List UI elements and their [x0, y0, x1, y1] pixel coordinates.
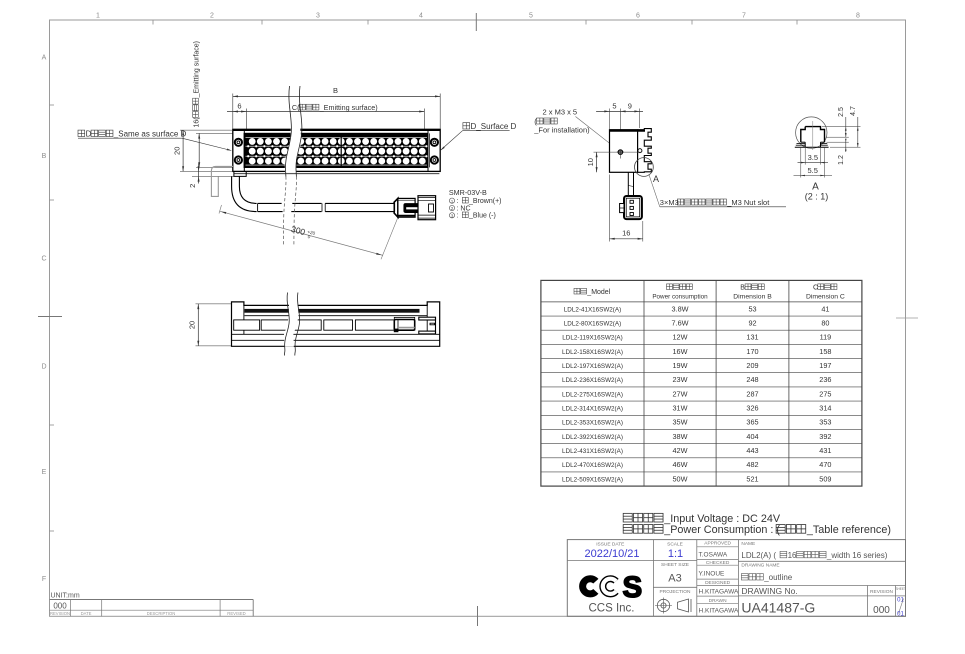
svg-text:209: 209 — [746, 361, 758, 370]
svg-text:12W: 12W — [672, 333, 687, 342]
svg-text:REVISED: REVISED — [227, 611, 245, 616]
svg-text:Y.INOUE: Y.INOUE — [699, 570, 726, 577]
svg-text:19W: 19W — [672, 361, 687, 370]
svg-text:5: 5 — [612, 102, 616, 111]
svg-text:B: B — [42, 153, 47, 160]
svg-text:170: 170 — [746, 347, 758, 356]
svg-text:158: 158 — [819, 347, 831, 356]
svg-text:LDL2-470X16SW2(A): LDL2-470X16SW2(A) — [562, 462, 623, 469]
svg-text:1.2: 1.2 — [838, 155, 845, 165]
svg-text:1: 1 — [96, 13, 100, 20]
svg-text:197: 197 — [819, 361, 831, 370]
svg-text:LDL2-392X16SW2(A): LDL2-392X16SW2(A) — [562, 434, 623, 441]
svg-text:31W: 31W — [672, 404, 687, 413]
svg-text:2022/10/21: 2022/10/21 — [584, 548, 639, 560]
svg-text:C: C — [813, 285, 818, 292]
svg-text:27W: 27W — [672, 389, 687, 398]
svg-text:LDL2-41X16SW2(A): LDL2-41X16SW2(A) — [564, 306, 621, 313]
svg-text::: : — [457, 213, 459, 220]
svg-text:SHEET SIZE: SHEET SIZE — [661, 562, 689, 568]
svg-text:LDL2-314X16SW2(A): LDL2-314X16SW2(A) — [562, 406, 623, 413]
svg-text:4: 4 — [419, 13, 423, 20]
svg-text:000: 000 — [873, 605, 890, 616]
svg-text:4.7: 4.7 — [850, 106, 857, 116]
svg-text:509: 509 — [819, 474, 831, 483]
svg-text:A: A — [653, 174, 659, 184]
svg-text:353: 353 — [819, 418, 831, 427]
svg-text:392: 392 — [819, 432, 831, 441]
svg-text:LDL2-197X16SW2(A): LDL2-197X16SW2(A) — [562, 363, 623, 370]
svg-text:B: B — [333, 86, 338, 95]
svg-text:42W: 42W — [672, 446, 687, 455]
svg-text:Dimension B: Dimension B — [733, 294, 772, 301]
svg-text:10: 10 — [586, 158, 595, 166]
svg-text:SHEET: SHEET — [895, 587, 906, 591]
svg-text:LDL2-353X16SW2(A): LDL2-353X16SW2(A) — [562, 420, 623, 427]
svg-text:92: 92 — [748, 319, 756, 328]
svg-text:CCS Inc.: CCS Inc. — [588, 603, 634, 615]
svg-text:_Blue (-): _Blue (-) — [468, 213, 496, 220]
svg-text:(2 : 1): (2 : 1) — [805, 192, 829, 202]
svg-text:470: 470 — [819, 460, 831, 469]
svg-text:431: 431 — [819, 446, 831, 455]
svg-text:DRAWING NAME: DRAWING NAME — [741, 563, 779, 569]
svg-text:CHECKED: CHECKED — [706, 560, 730, 566]
svg-text:DRAWN: DRAWN — [709, 598, 727, 604]
svg-text:LDL2-119X16SW2(A): LDL2-119X16SW2(A) — [562, 335, 622, 342]
svg-text:326: 326 — [746, 404, 758, 413]
svg-text:8: 8 — [856, 13, 860, 20]
svg-text:35W: 35W — [672, 418, 687, 427]
svg-text:Power consumption: Power consumption — [652, 294, 708, 301]
svg-text:2: 2 — [188, 184, 197, 188]
svg-text:LDL2-80X16SW2(A): LDL2-80X16SW2(A) — [564, 321, 621, 328]
svg-text:23W: 23W — [672, 375, 687, 384]
svg-text:9: 9 — [628, 102, 632, 111]
svg-text:287: 287 — [746, 389, 758, 398]
svg-text:1: 1 — [451, 199, 454, 204]
svg-text:T.OSAWA: T.OSAWA — [699, 551, 728, 558]
svg-text:PROJECTION: PROJECTION — [660, 589, 691, 595]
svg-text:41: 41 — [821, 304, 829, 313]
svg-text:NAME: NAME — [741, 541, 755, 547]
svg-text:3: 3 — [451, 213, 454, 218]
svg-text:_Model: _Model — [586, 289, 610, 296]
svg-text:Dimension C: Dimension C — [806, 294, 845, 301]
svg-text:S: S — [623, 571, 643, 604]
svg-text:6: 6 — [237, 102, 241, 111]
svg-text:3.8W: 3.8W — [671, 304, 688, 313]
svg-text:DESCRIPTION: DESCRIPTION — [147, 611, 176, 616]
svg-text:365: 365 — [746, 418, 758, 427]
svg-text:D: D — [86, 130, 92, 139]
svg-text:314: 314 — [819, 404, 831, 413]
svg-text:1:1: 1:1 — [668, 548, 683, 560]
svg-text:16: 16 — [622, 228, 630, 237]
svg-text:38W: 38W — [672, 432, 687, 441]
svg-text:LDL2-158X16SW2(A): LDL2-158X16SW2(A) — [562, 349, 623, 356]
svg-text:01: 01 — [897, 612, 904, 618]
svg-text:REVISION: REVISION — [870, 589, 893, 595]
svg-text:80: 80 — [821, 319, 829, 328]
svg-text:_Emitting surface): _Emitting surface) — [319, 103, 378, 112]
svg-text:2.5: 2.5 — [838, 107, 845, 117]
svg-text:6: 6 — [636, 13, 640, 20]
svg-text:236: 236 — [819, 375, 831, 384]
svg-text:DESIGNED: DESIGNED — [705, 580, 731, 586]
svg-text:482: 482 — [746, 460, 758, 469]
svg-text:16: 16 — [788, 551, 797, 560]
svg-text:D_Surface D: D_Surface D — [471, 122, 517, 131]
svg-text:7.6W: 7.6W — [671, 319, 688, 328]
svg-text:20: 20 — [173, 147, 182, 155]
svg-text:DATE: DATE — [81, 611, 92, 616]
svg-text:SCALE: SCALE — [667, 541, 683, 547]
svg-text:53: 53 — [748, 304, 756, 313]
svg-text:16(: 16( — [193, 117, 200, 128]
svg-text:UA41487-G: UA41487-G — [741, 599, 815, 615]
svg-text:_M3 Nut slot: _M3 Nut slot — [726, 198, 770, 207]
svg-text:131: 131 — [746, 333, 758, 342]
svg-text:_Input Voltage : DC 24V: _Input Voltage : DC 24V — [663, 513, 781, 525]
svg-text:ISSUE DATE: ISSUE DATE — [596, 541, 624, 547]
svg-text:000: 000 — [53, 601, 67, 610]
svg-text:SMR-03V-B: SMR-03V-B — [449, 188, 487, 197]
svg-text:D: D — [41, 364, 46, 371]
svg-text:248: 248 — [746, 375, 758, 384]
svg-text:: NC: : NC — [457, 205, 471, 212]
svg-text:LDL2-431X16SW2(A): LDL2-431X16SW2(A) — [562, 448, 623, 455]
svg-text:01: 01 — [897, 598, 904, 604]
svg-text:C: C — [41, 256, 46, 263]
svg-text:16W: 16W — [672, 347, 687, 356]
svg-text:A: A — [42, 55, 47, 62]
svg-text:C(: C( — [292, 103, 300, 112]
svg-text:H.KITAGAWA: H.KITAGAWA — [699, 608, 740, 615]
svg-text:5.5: 5.5 — [807, 166, 817, 175]
svg-text:20: 20 — [187, 321, 196, 329]
svg-text:REVISION: REVISION — [50, 611, 70, 616]
svg-text:3.5: 3.5 — [808, 153, 818, 162]
svg-text:404: 404 — [746, 432, 758, 441]
svg-text:_Power Consumption : (: _Power Consumption : ( — [663, 524, 780, 536]
svg-text:_For installation): _For installation) — [533, 126, 590, 135]
svg-text:APPROVED: APPROVED — [704, 541, 731, 547]
svg-text:H.KITAGAWA: H.KITAGAWA — [699, 589, 740, 596]
svg-text:5: 5 — [529, 13, 533, 20]
svg-text:443: 443 — [746, 446, 758, 455]
svg-text:2: 2 — [451, 206, 454, 211]
svg-text:_outline: _outline — [763, 573, 793, 582]
svg-text:_Emitting surface): _Emitting surface) — [193, 41, 200, 98]
svg-text:3: 3 — [316, 13, 320, 20]
svg-text::: : — [457, 198, 459, 205]
svg-text:_Table reference): _Table reference) — [806, 524, 891, 536]
svg-text:UNIT:mm: UNIT:mm — [51, 592, 80, 599]
svg-text:_width 16 series): _width 16 series) — [826, 551, 888, 560]
svg-text:7: 7 — [742, 13, 746, 20]
svg-text:LDL2-509X16SW2(A): LDL2-509X16SW2(A) — [562, 476, 623, 483]
svg-text:50W: 50W — [672, 474, 687, 483]
svg-text:2: 2 — [210, 13, 214, 20]
svg-text:_Same as surface D: _Same as surface D — [113, 130, 187, 139]
svg-text:B: B — [740, 285, 745, 292]
svg-text:LDL2-275X16SW2(A): LDL2-275X16SW2(A) — [562, 391, 623, 398]
svg-text:A3: A3 — [668, 573, 681, 585]
svg-text:46W: 46W — [672, 460, 687, 469]
svg-text:2 x M3 x 5: 2 x M3 x 5 — [543, 108, 578, 117]
svg-text:275: 275 — [819, 389, 831, 398]
svg-text:DRAWING No.: DRAWING No. — [741, 586, 797, 596]
svg-text:119: 119 — [820, 333, 832, 342]
svg-text:3×M3: 3×M3 — [660, 198, 679, 207]
svg-text:_Brown(+): _Brown(+) — [468, 198, 501, 205]
svg-text:E: E — [42, 469, 47, 476]
svg-text:521: 521 — [746, 474, 758, 483]
svg-text:LDL2-236X16SW2(A): LDL2-236X16SW2(A) — [562, 377, 623, 384]
svg-text:LDL2(A) (: LDL2(A) ( — [741, 551, 776, 560]
svg-text:F: F — [42, 576, 46, 583]
